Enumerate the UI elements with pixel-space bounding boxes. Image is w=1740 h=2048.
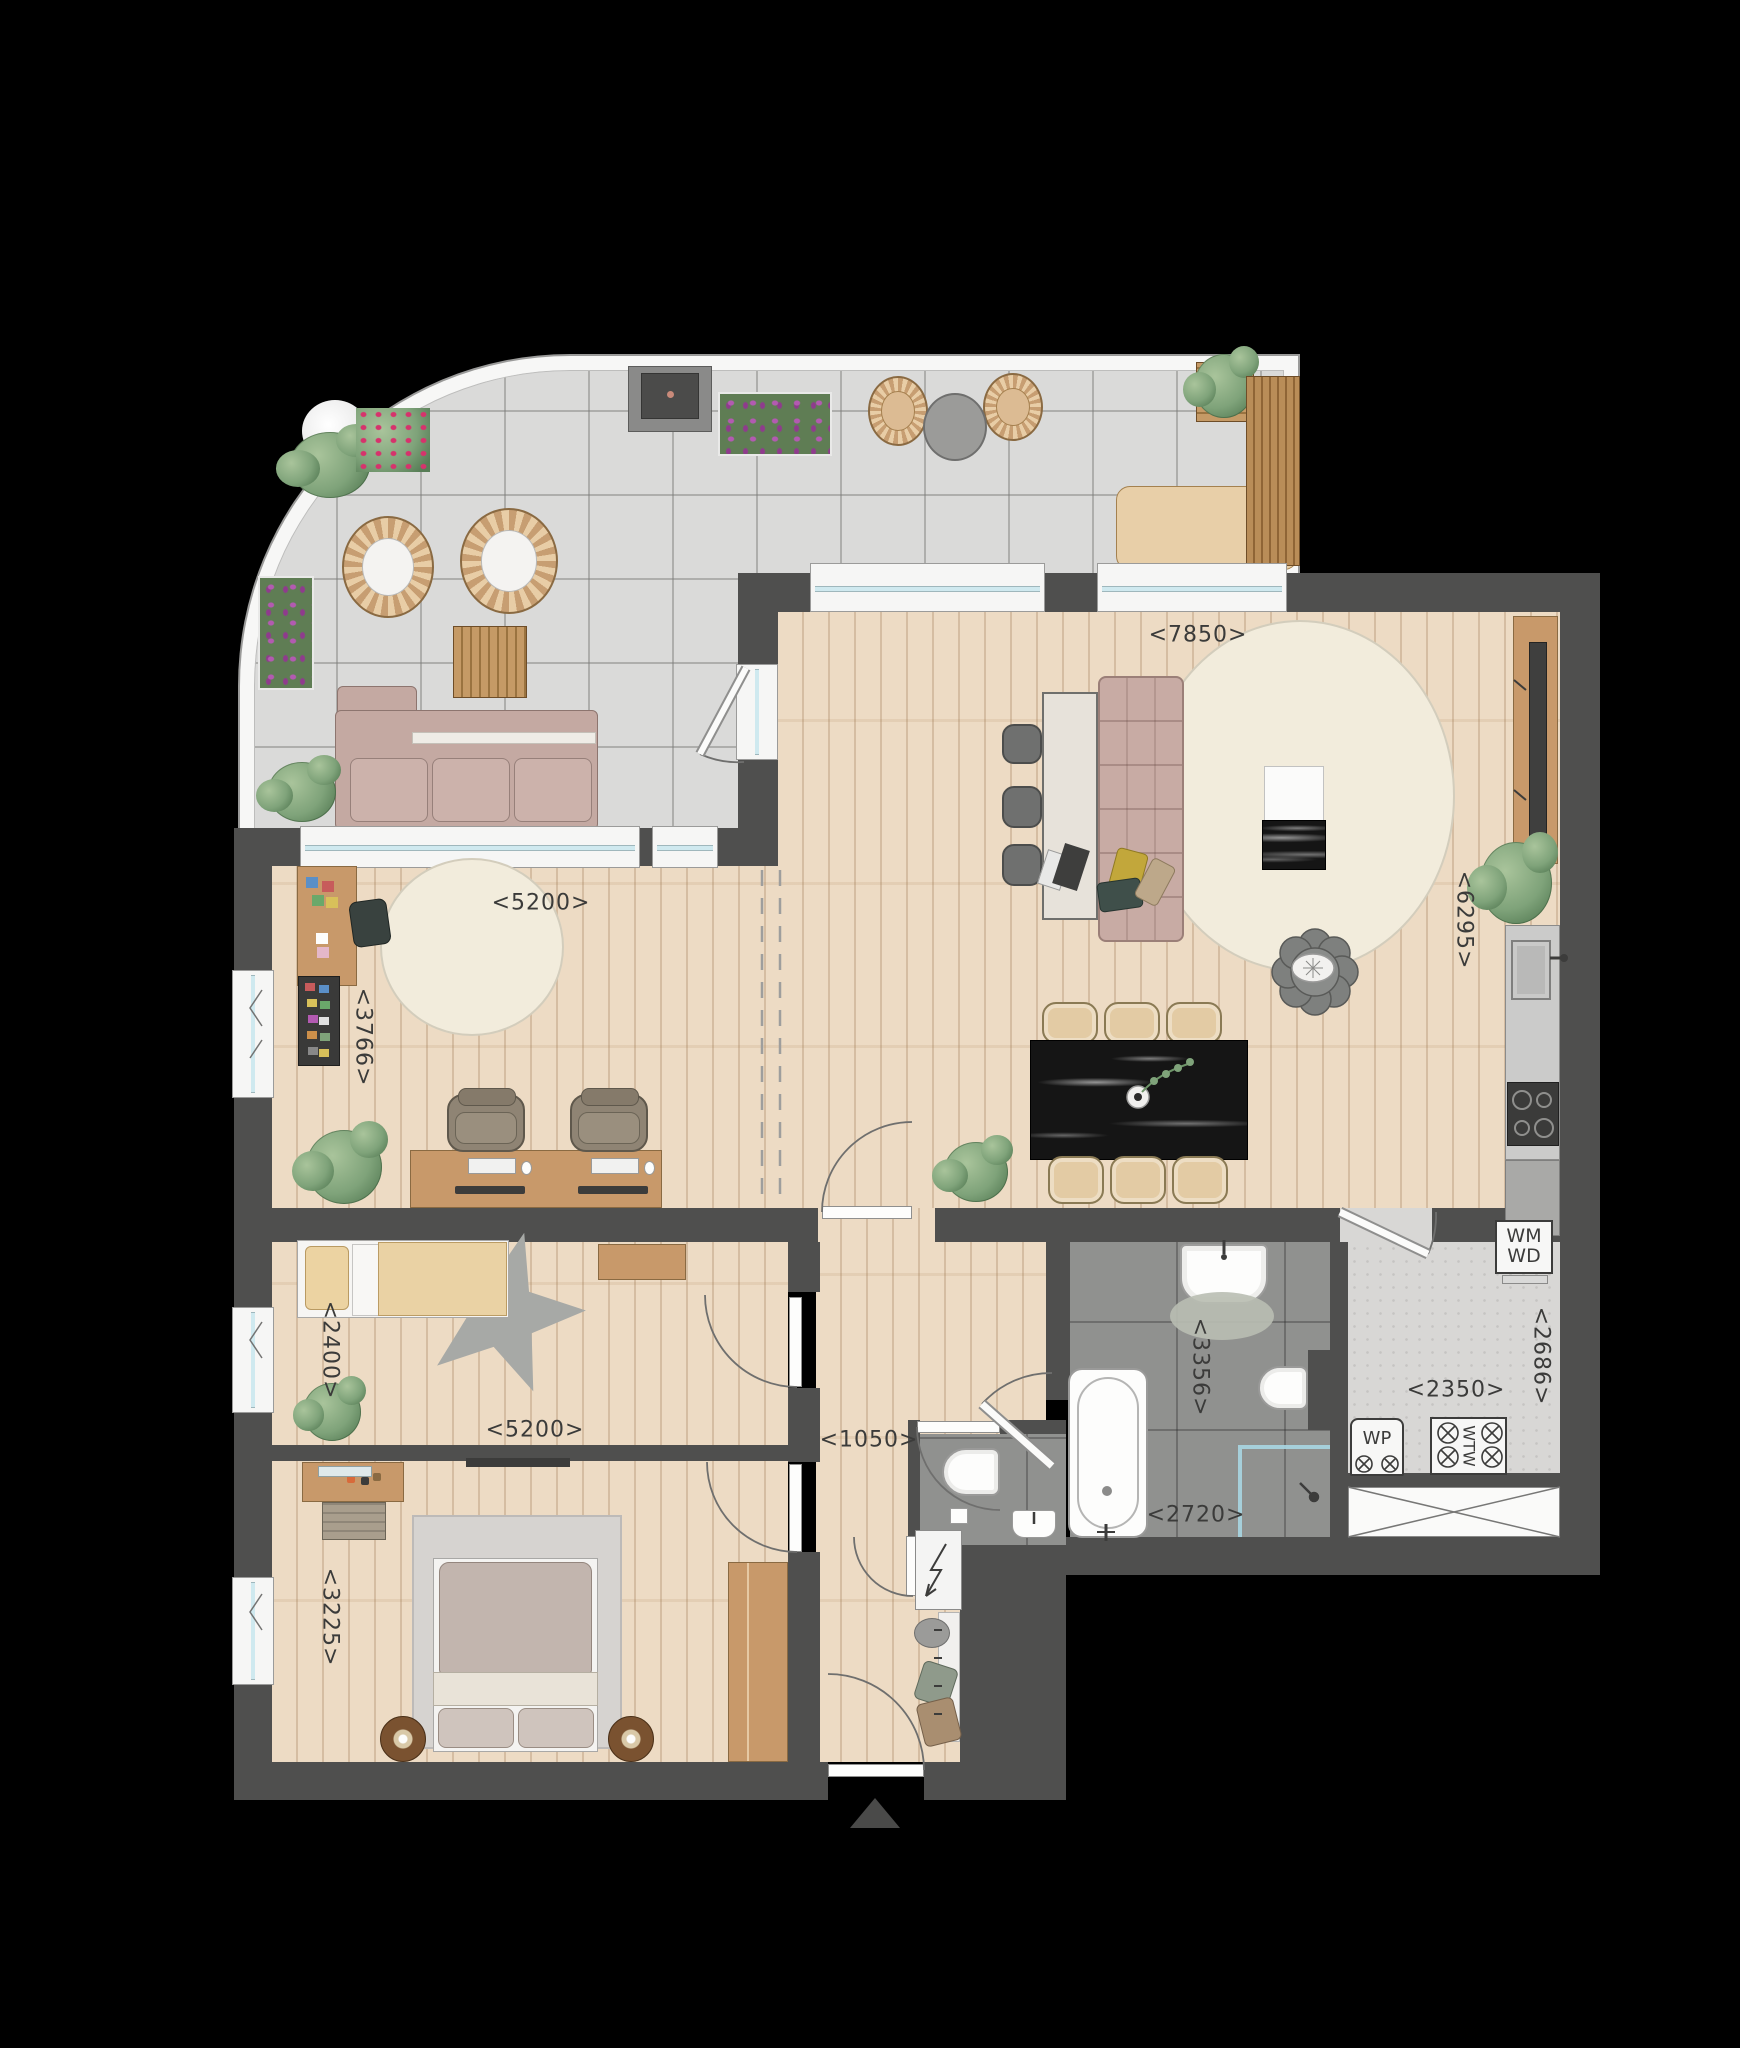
- door-leaf: [822, 1206, 912, 1219]
- flower-bed-pink: [356, 408, 430, 472]
- keyboard: [468, 1158, 516, 1174]
- floor-plan: WM WD WP WTW: [0, 0, 1740, 2048]
- entrance-door-leaf: [828, 1764, 924, 1777]
- window: [232, 1307, 274, 1413]
- bistro-chair: [983, 373, 1043, 441]
- mouse: [521, 1161, 532, 1175]
- bath-mat: [1170, 1292, 1274, 1340]
- potted-plant: [306, 1130, 382, 1204]
- mouse: [644, 1161, 655, 1175]
- wall-segment: [234, 1762, 828, 1800]
- fireplace-marble-base: [1262, 820, 1326, 870]
- cooktop: [1507, 1082, 1559, 1146]
- wall-television: [466, 1458, 570, 1467]
- fireplace: [1264, 766, 1324, 824]
- window: [232, 970, 274, 1098]
- toilet: [942, 1448, 1000, 1496]
- dimension-label: <6295>: [1452, 871, 1477, 970]
- bathtub-drain-icon: [1102, 1486, 1112, 1496]
- window: [1097, 563, 1287, 612]
- keyboard: [591, 1158, 639, 1174]
- dimension-label: <5200>: [486, 1418, 585, 1443]
- wall-segment: [788, 1552, 820, 1762]
- washer-dryer-tray: [1502, 1275, 1548, 1284]
- woven-bench: [322, 1502, 386, 1540]
- office-chair: [447, 1094, 525, 1152]
- grill-knob-icon: [667, 391, 674, 398]
- shaft: [1348, 1487, 1560, 1537]
- bed-duvet: [439, 1562, 592, 1674]
- door-leaf: [789, 1464, 802, 1552]
- dimension-label: <3356>: [1188, 1318, 1213, 1417]
- wall-segment: [960, 1545, 1066, 1762]
- toilet-cistern: [950, 1508, 968, 1524]
- bbq-grill: [628, 366, 712, 432]
- potted-plant: [268, 762, 336, 822]
- window: [810, 563, 1045, 612]
- dryer-label: WD: [1507, 1247, 1540, 1267]
- dimension-label: <5200>: [492, 891, 591, 916]
- deck-tile: [453, 626, 527, 698]
- monitor: [578, 1186, 648, 1194]
- office-chair: [570, 1094, 648, 1152]
- wall-segment: [924, 1762, 1066, 1800]
- washer-dryer-unit: WM WD: [1495, 1220, 1553, 1274]
- wall-segment: [1330, 1242, 1348, 1537]
- meter-cabinet: [915, 1530, 962, 1610]
- potted-plant: [1194, 354, 1254, 418]
- dining-chair: [1172, 1156, 1228, 1204]
- washer-label: WM: [1506, 1227, 1541, 1247]
- entrance-arrow-icon: [850, 1798, 900, 1828]
- television: [1529, 642, 1547, 840]
- kitchen-sink: [1511, 940, 1551, 1000]
- hand-basin: [1012, 1510, 1056, 1538]
- stool: [1002, 724, 1042, 764]
- terrace-door: [736, 664, 778, 760]
- bed-headboard: [433, 1672, 598, 1706]
- heat-recovery-label: WTW: [1459, 1425, 1478, 1466]
- wall-segment: [1000, 1420, 1066, 1434]
- dimension-label: <2400>: [318, 1301, 343, 1400]
- dining-table-marble: [1030, 1040, 1248, 1160]
- wall-segment: [1066, 1537, 1600, 1575]
- heat-pump-unit: WP: [1350, 1418, 1404, 1476]
- dining-chair: [1042, 1002, 1098, 1044]
- bed-blanket: [378, 1242, 507, 1316]
- outdoor-sofa-back: [412, 732, 596, 744]
- toilet-cistern-panel: [1308, 1350, 1330, 1430]
- wall-segment: [1560, 573, 1600, 1575]
- round-rug: [380, 858, 564, 1036]
- wall-segment: [935, 1208, 1340, 1242]
- dimension-label: <3225>: [318, 1568, 343, 1667]
- wall-segment: [788, 1242, 820, 1292]
- wood-privacy-screen: [1246, 376, 1300, 566]
- side-table: [380, 1716, 426, 1762]
- dresser: [598, 1244, 686, 1280]
- bistro-chair: [868, 376, 928, 446]
- side-table: [608, 1716, 654, 1762]
- dining-chair: [1110, 1156, 1166, 1204]
- play-table: [297, 866, 357, 986]
- egg-chair: [342, 516, 434, 618]
- bed-sheet-fold: [352, 1244, 380, 1316]
- stool: [1002, 786, 1042, 828]
- wardrobe: [728, 1562, 788, 1762]
- door-leaf: [917, 1421, 1000, 1433]
- bathtub: [1068, 1368, 1148, 1538]
- play-chair: [348, 898, 392, 949]
- stool: [1002, 844, 1042, 886]
- dimension-label: <3766>: [351, 988, 376, 1087]
- door-leaf: [789, 1297, 802, 1387]
- dimension-label: <2720>: [1147, 1503, 1246, 1528]
- heat-recovery-unit: WTW: [1430, 1417, 1507, 1475]
- sofa-cushion: [350, 758, 428, 822]
- window: [232, 1577, 274, 1685]
- bistro-table: [923, 393, 987, 461]
- bed-pillow: [438, 1708, 514, 1748]
- bed-pillow: [518, 1708, 594, 1748]
- wall-segment: [272, 1208, 818, 1242]
- dimension-label: <1050>: [820, 1428, 919, 1453]
- vanity-mirror: [318, 1466, 372, 1477]
- wall-segment: [788, 1388, 820, 1462]
- potted-plant: [1480, 842, 1552, 924]
- planter-box: [258, 576, 314, 690]
- window: [652, 826, 718, 868]
- sofa-cushion: [432, 758, 510, 822]
- dimension-label: <2350>: [1407, 1378, 1506, 1403]
- dimension-label: <7850>: [1149, 623, 1248, 648]
- utility-door-opening: [1340, 1208, 1432, 1242]
- sofa-cushion: [514, 758, 592, 822]
- dimension-label: <2686>: [1529, 1307, 1554, 1406]
- heat-pump-label: WP: [1363, 1428, 1392, 1449]
- dining-chair: [1048, 1156, 1104, 1204]
- bookshelf: [298, 976, 340, 1066]
- planter-box: [718, 392, 832, 456]
- dining-chair: [1104, 1002, 1160, 1044]
- toilet: [1258, 1366, 1308, 1410]
- wall-segment: [1046, 1242, 1070, 1400]
- dining-chair: [1166, 1002, 1222, 1044]
- egg-chair: [460, 508, 558, 614]
- monitor: [455, 1186, 525, 1194]
- potted-plant: [944, 1142, 1008, 1202]
- cap: [914, 1618, 950, 1648]
